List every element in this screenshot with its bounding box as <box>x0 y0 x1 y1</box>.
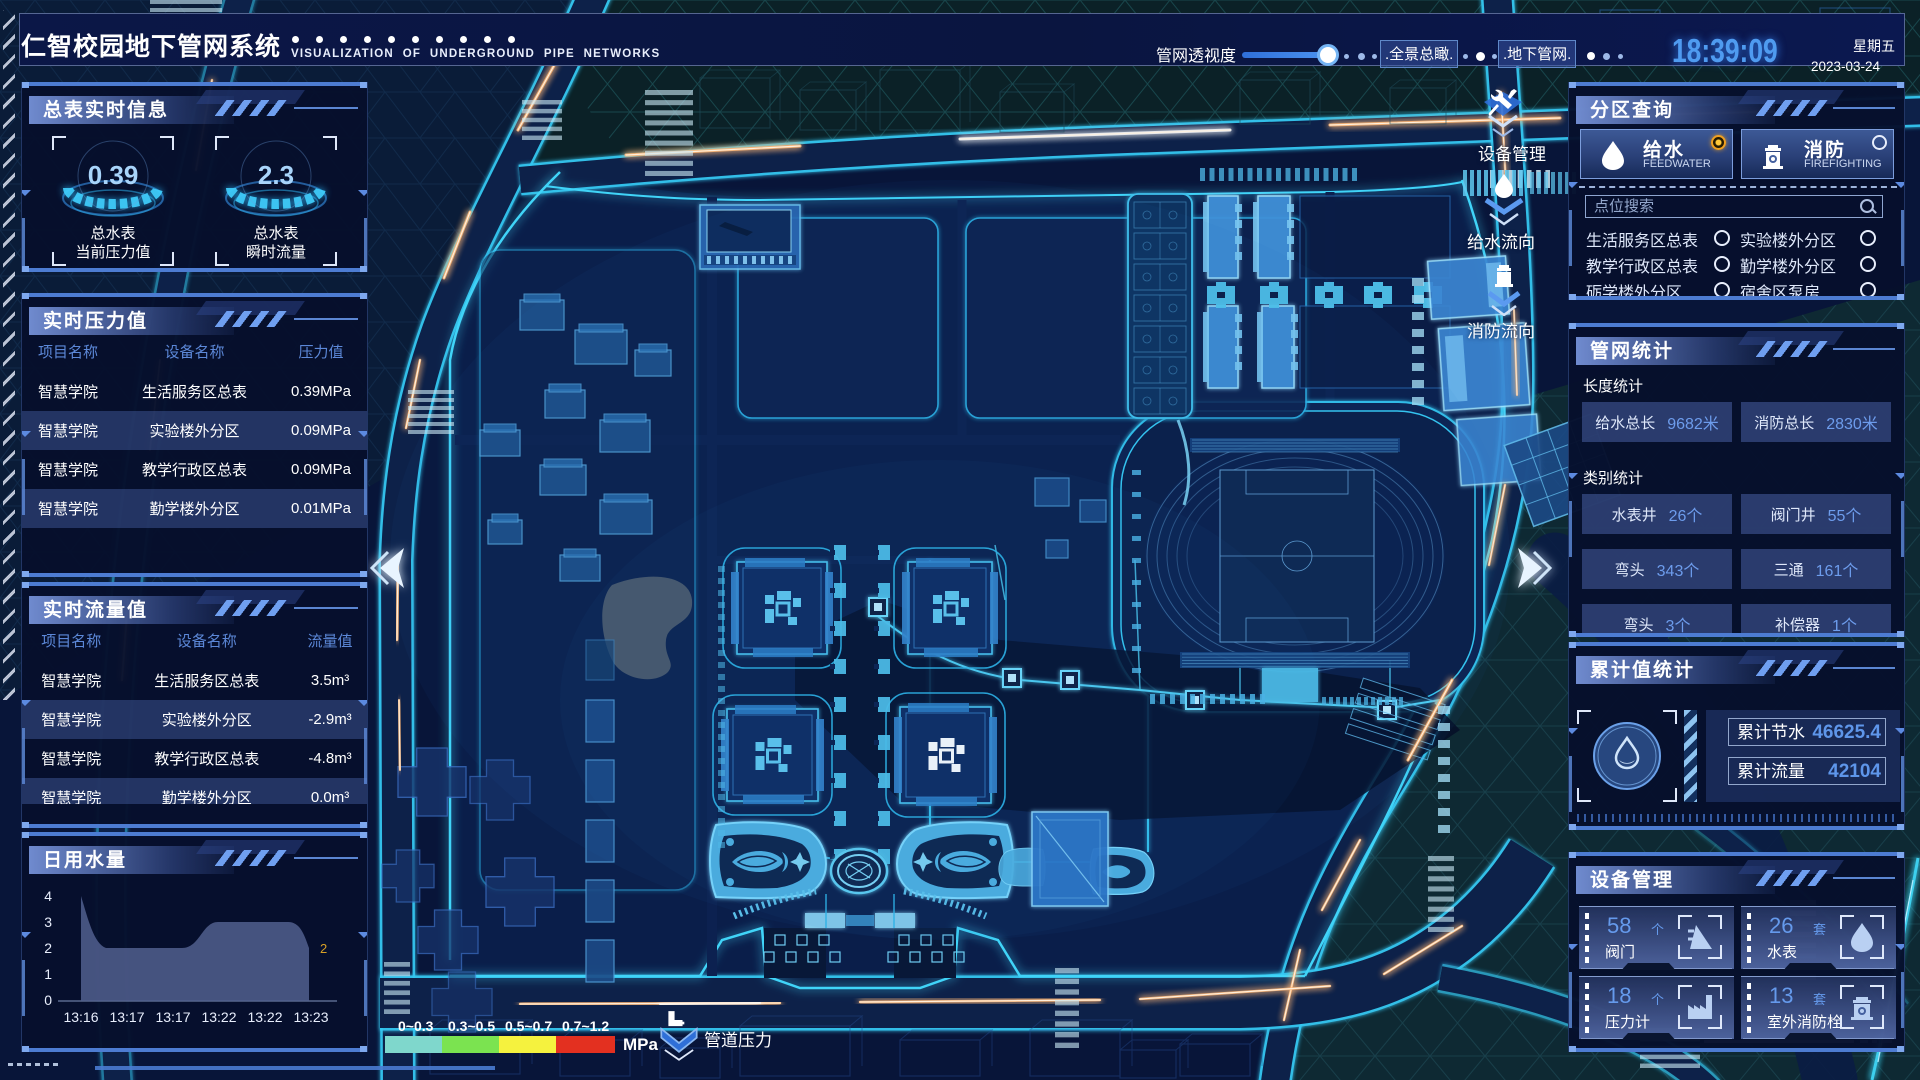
svg-text:2.3: 2.3 <box>258 160 294 190</box>
svg-text:2: 2 <box>320 941 327 956</box>
svg-text:13:17: 13:17 <box>109 1009 144 1025</box>
svg-text:13:23: 13:23 <box>293 1009 328 1025</box>
svg-text:13:22: 13:22 <box>201 1009 236 1025</box>
svg-text:0.39: 0.39 <box>88 160 139 190</box>
svg-text:0: 0 <box>44 992 52 1008</box>
svg-text:13:16: 13:16 <box>63 1009 98 1025</box>
svg-text:2: 2 <box>44 940 52 956</box>
svg-text:3: 3 <box>44 914 52 930</box>
svg-text:13:17: 13:17 <box>155 1009 190 1025</box>
svg-text:13:22: 13:22 <box>247 1009 282 1025</box>
svg-text:1: 1 <box>44 966 52 982</box>
svg-text:4: 4 <box>44 888 52 904</box>
